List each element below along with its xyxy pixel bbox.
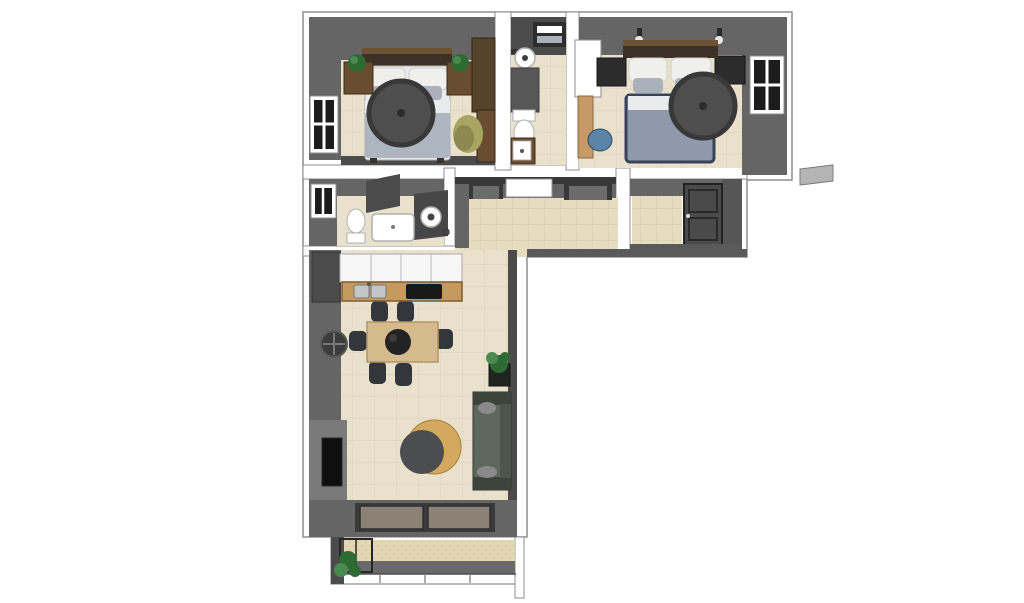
sconce-arm (637, 28, 642, 36)
sink-bowl (371, 285, 386, 298)
washer-center (428, 214, 435, 221)
balcony-right-wall-cut (515, 537, 524, 598)
bathtub (372, 214, 414, 241)
trellis-plant (349, 565, 361, 577)
cooktop (406, 284, 442, 299)
nightstand-left-bed2 (597, 58, 626, 86)
ceiling-fan-bedroom1 (369, 81, 433, 145)
room-bathroom-2 (309, 174, 449, 246)
entry-floor-tiles (632, 196, 682, 244)
room-bedroom-1 (309, 17, 495, 165)
sink-drain (520, 149, 524, 153)
hallway-west-wall (455, 184, 469, 248)
floor-plan-canvas (0, 0, 1024, 603)
plant-foliage (486, 352, 498, 364)
room-bathroom-1 (511, 17, 566, 165)
glass-panel (428, 506, 490, 529)
entry-south-wall (630, 244, 742, 254)
sofa-back (500, 404, 511, 478)
balcony-floor-speckle (344, 540, 515, 561)
chair-seat (454, 125, 474, 151)
dining-chair (397, 301, 414, 322)
glass-panel (360, 506, 423, 529)
tv-niche (322, 438, 342, 486)
wall-cut-bed1-bath1 (495, 12, 511, 170)
sconce-arm (717, 28, 722, 36)
shelf-frame (533, 22, 566, 47)
door-frame-east (564, 182, 612, 200)
fan-hub (397, 109, 405, 117)
bathroom2-window (311, 184, 336, 218)
nightstand (597, 58, 626, 86)
kitchen-tall-cabinet (312, 252, 340, 302)
dining-chair (349, 331, 367, 351)
potted-plant (348, 54, 366, 72)
door-opening (569, 186, 607, 200)
toilet-2 (347, 209, 365, 243)
dining-chair (369, 361, 386, 384)
entry-east-wall (722, 179, 742, 249)
fan-hub (699, 102, 707, 110)
ac-unit (800, 165, 833, 185)
accent-chair (453, 115, 483, 153)
room-entry (630, 179, 742, 254)
front-door (684, 184, 722, 246)
wardrobe-upper (472, 38, 495, 112)
headboard (623, 46, 718, 58)
pillow-small (633, 78, 663, 93)
headboard (362, 54, 452, 67)
toilet-bowl (347, 209, 365, 233)
hallway-floor-tiles (455, 196, 618, 250)
room-kitchen (312, 252, 462, 302)
potted-plant-living (486, 352, 510, 386)
floor-plan-image (0, 0, 1024, 603)
trellis-plant (334, 563, 348, 577)
tub-drain (391, 225, 395, 229)
vanity-counter (511, 68, 539, 112)
sofa (473, 392, 511, 490)
ceiling-fan-bedroom2 (671, 74, 735, 138)
potted-plant (451, 54, 469, 72)
room-bedroom-2 (575, 17, 787, 175)
bedroom1-window (310, 96, 338, 153)
cat (478, 402, 496, 414)
desk-top (578, 96, 593, 158)
kitchen-faucet (367, 282, 371, 286)
towel (537, 26, 562, 33)
door-opening (473, 186, 499, 199)
plant-foliage (500, 352, 510, 362)
dining-chair (395, 363, 412, 386)
sink-cabinet (511, 138, 535, 164)
towel (537, 36, 562, 43)
center-tray (385, 329, 411, 355)
wall-cut-hall-entry (616, 168, 630, 257)
sink-drain (522, 55, 528, 61)
door-knob (686, 214, 690, 218)
cat (477, 466, 497, 478)
sofa-armrest (473, 477, 511, 490)
toilet-tank (513, 110, 535, 121)
wall-fan (321, 331, 347, 357)
open-doorway (506, 179, 552, 197)
bed-foot (437, 158, 444, 163)
armchair-cushion (400, 430, 444, 474)
plant-highlight (453, 56, 461, 64)
dining-chair (371, 301, 388, 322)
toilet-tank (347, 233, 365, 243)
towel-shelf (533, 22, 566, 47)
bed-foot (370, 158, 377, 163)
tray-item (389, 334, 397, 342)
bedroom2-window (750, 56, 784, 114)
plant-highlight (350, 56, 358, 64)
sink-bowl (354, 285, 369, 298)
door-frame-west (469, 182, 503, 199)
desk-chair (588, 129, 612, 151)
sliding-glass-door (309, 500, 517, 537)
